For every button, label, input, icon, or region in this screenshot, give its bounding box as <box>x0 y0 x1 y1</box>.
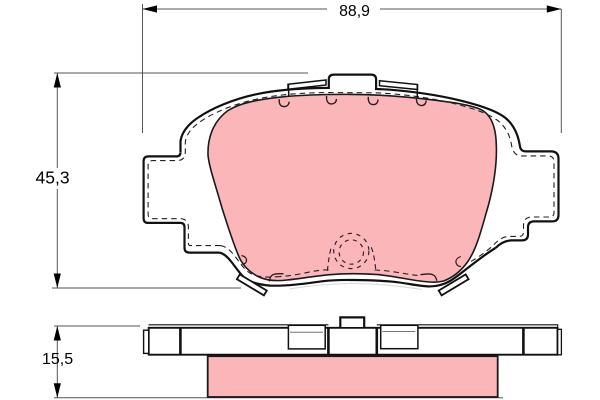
svg-text:15,5: 15,5 <box>42 351 73 368</box>
svg-text:88,9: 88,9 <box>339 3 370 20</box>
svg-text:45,3: 45,3 <box>36 168 70 188</box>
